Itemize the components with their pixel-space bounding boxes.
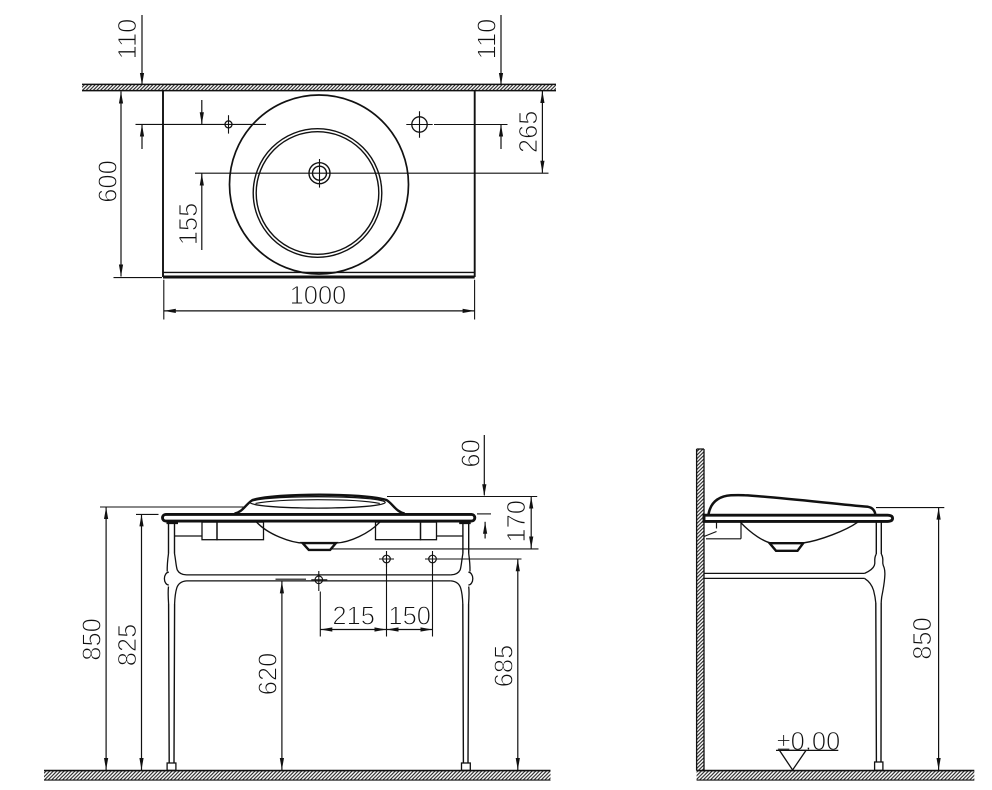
svg-text:265: 265 <box>515 111 543 154</box>
svg-text:155: 155 <box>175 203 203 246</box>
svg-text:850: 850 <box>909 617 937 660</box>
svg-text:60: 60 <box>457 439 485 467</box>
svg-text:620: 620 <box>255 653 283 696</box>
svg-text:215: 215 <box>332 602 375 630</box>
svg-text:170: 170 <box>503 500 531 543</box>
svg-text:825: 825 <box>114 624 142 667</box>
svg-text:150: 150 <box>388 602 431 630</box>
svg-text:±0.00: ±0.00 <box>777 728 841 756</box>
svg-text:850: 850 <box>79 618 107 661</box>
svg-text:685: 685 <box>491 645 519 688</box>
svg-text:600: 600 <box>95 160 123 203</box>
svg-text:110: 110 <box>474 19 502 60</box>
svg-text:110: 110 <box>114 19 142 60</box>
svg-text:1000: 1000 <box>290 282 347 310</box>
